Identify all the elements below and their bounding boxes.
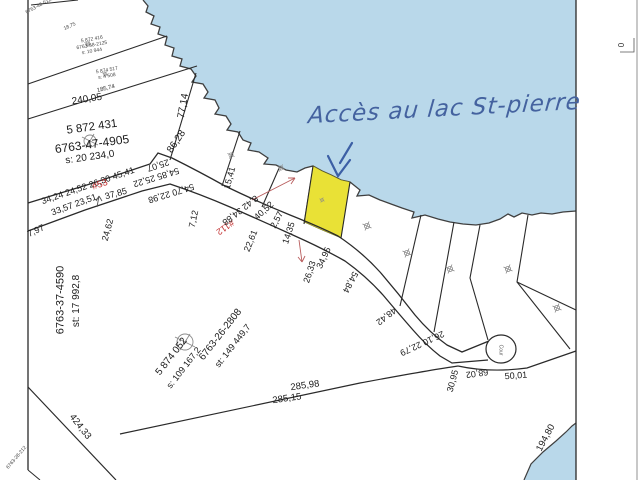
survey-marker-small bbox=[363, 222, 372, 231]
corner-line-bottom-left bbox=[28, 470, 40, 480]
margin-mark-bracket bbox=[620, 38, 634, 52]
survey-marker-small bbox=[102, 71, 108, 77]
lot-line-east-of-4905 bbox=[170, 73, 196, 160]
lot-line-top-corner bbox=[31, 0, 78, 5]
lot-line-r2 bbox=[517, 282, 576, 310]
leader-arrow-red-2 bbox=[298, 240, 305, 262]
survey-marker-small bbox=[446, 265, 455, 274]
survey-marker-2808 bbox=[175, 334, 195, 350]
lot-line-a2 bbox=[28, 36, 167, 84]
lot-line-f2 bbox=[400, 215, 421, 306]
lot-line-424 bbox=[28, 387, 116, 480]
lot-line-s2 bbox=[222, 131, 240, 186]
lot-line-a3 bbox=[28, 66, 197, 119]
south-boundary-line bbox=[120, 366, 458, 434]
survey-marker-small bbox=[553, 304, 562, 313]
survey-marker-small bbox=[403, 249, 412, 258]
lot-line-f5 bbox=[517, 215, 570, 349]
survey-marker-4905 bbox=[82, 134, 98, 148]
survey-marker-small bbox=[504, 265, 513, 274]
lot-line-f4 bbox=[470, 225, 488, 340]
survey-map-canvas bbox=[0, 0, 640, 480]
lot-line-f3 bbox=[434, 222, 454, 332]
pond-bottom-right-water bbox=[524, 423, 576, 480]
survey-marker-small bbox=[84, 40, 91, 47]
lot-line-s3 bbox=[262, 166, 280, 207]
cul-de-sac bbox=[486, 335, 516, 363]
scanned-survey-map: 240,0577,1486,2834,24 24,52 26,30 45,412… bbox=[0, 0, 640, 480]
